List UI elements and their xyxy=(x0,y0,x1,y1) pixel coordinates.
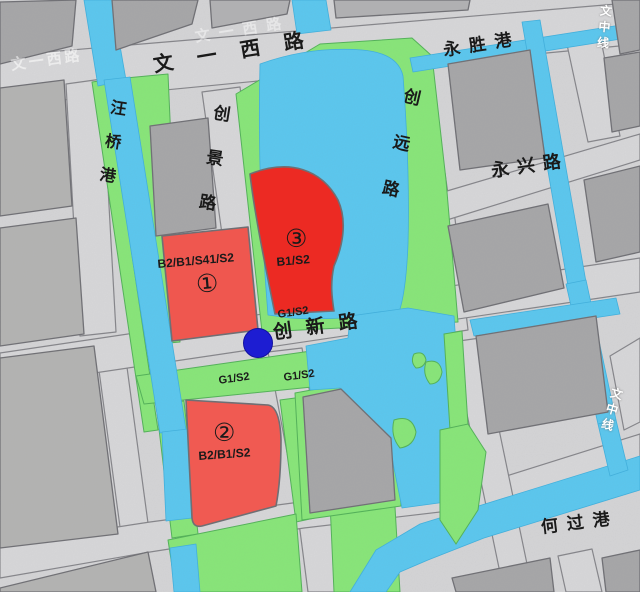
water-wangqiaogang-bottom xyxy=(170,544,200,592)
block xyxy=(0,80,72,216)
block xyxy=(0,218,84,346)
block xyxy=(150,118,216,236)
planning-map: 文一西路 文一西路 文一西路 汪桥港 创景路 创远路 永胜港 永兴路 创新路 G… xyxy=(0,0,640,592)
location-marker-dot[interactable] xyxy=(244,329,273,358)
water-patch-top xyxy=(292,0,331,34)
map-canvas xyxy=(0,0,640,592)
block xyxy=(448,50,545,170)
block xyxy=(602,550,640,592)
parcel-1[interactable] xyxy=(162,227,258,341)
parcel-2[interactable] xyxy=(186,400,281,526)
